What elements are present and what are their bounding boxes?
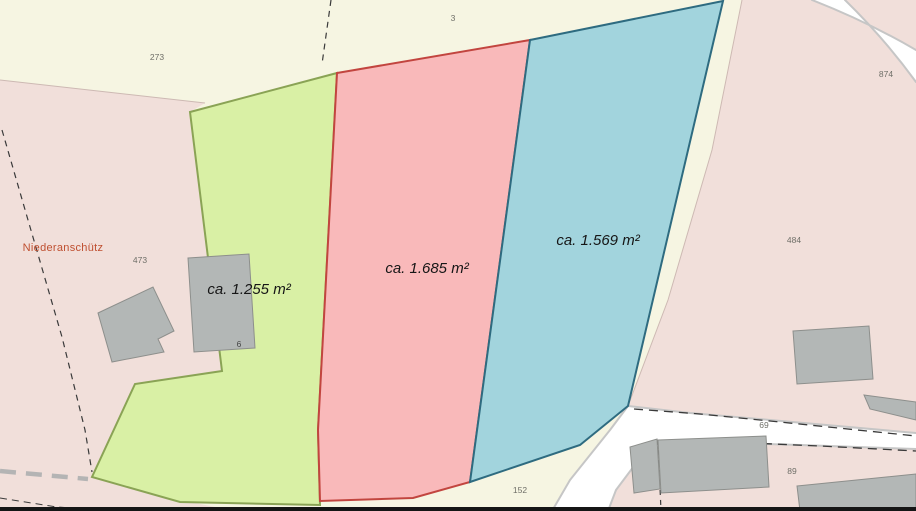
area-label-blue: ca. 1.569 m² bbox=[556, 232, 640, 249]
parcel-number-273: 273 bbox=[150, 52, 164, 62]
building-right bbox=[793, 326, 873, 384]
place-name-label: Niederanschütz bbox=[23, 242, 104, 254]
parcel-number-89: 89 bbox=[787, 466, 797, 476]
parcel-number-3: 3 bbox=[451, 13, 456, 23]
building-bottom-small bbox=[630, 439, 660, 493]
area-label-green: ca. 1.255 m² bbox=[207, 281, 291, 298]
area-label-red: ca. 1.685 m² bbox=[385, 260, 469, 277]
building-bottom-large bbox=[658, 436, 769, 493]
house-number-6: 6 bbox=[237, 339, 242, 349]
building-center bbox=[188, 254, 255, 352]
parcel-number-484: 484 bbox=[787, 235, 801, 245]
parcel-number-152: 152 bbox=[513, 485, 527, 495]
bottom-border-bar bbox=[0, 507, 916, 511]
parcel-number-69: 69 bbox=[759, 420, 769, 430]
parcel-number-473: 473 bbox=[133, 255, 147, 265]
cadastral-map: Niederanschütz ca. 1.255 m² ca. 1.685 m²… bbox=[0, 0, 916, 511]
parcel-number-874: 874 bbox=[879, 69, 893, 79]
